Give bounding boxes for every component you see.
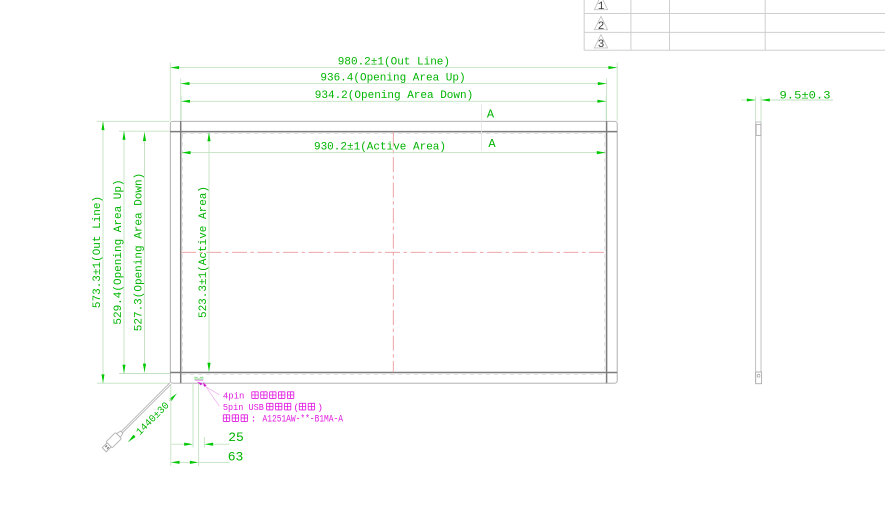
svg-text:): ) <box>317 402 323 413</box>
svg-text:527.3(Opening Area Down): 527.3(Opening Area Down) <box>134 173 146 331</box>
svg-text:936.4(Opening Area Up): 936.4(Opening Area Up) <box>320 72 465 84</box>
svg-text:523.3±1(Active Area): 523.3±1(Active Area) <box>198 186 210 318</box>
svg-text:(: ( <box>293 402 299 413</box>
svg-text:980.2±1(Out Line): 980.2±1(Out Line) <box>338 56 450 68</box>
svg-text::: : <box>251 414 257 425</box>
svg-text:5pin USB: 5pin USB <box>223 402 264 413</box>
svg-text:25: 25 <box>228 430 244 445</box>
svg-text:934.2(Opening Area Down): 934.2(Opening Area Down) <box>315 90 473 102</box>
svg-text:A: A <box>488 137 496 151</box>
svg-text:2: 2 <box>598 21 605 33</box>
svg-text:63: 63 <box>228 450 244 465</box>
svg-text:A: A <box>487 107 495 121</box>
svg-text:529.4(Opening Area Up): 529.4(Opening Area Up) <box>113 179 125 324</box>
svg-text:1: 1 <box>598 1 605 13</box>
svg-text:930.2±1(Active Area): 930.2±1(Active Area) <box>314 142 446 154</box>
svg-text:9.5±0.3: 9.5±0.3 <box>780 90 831 102</box>
svg-text:A1251AW-**-B1MA-A: A1251AW-**-B1MA-A <box>263 414 344 426</box>
svg-text:3: 3 <box>598 39 605 51</box>
svg-text:4pin: 4pin <box>223 391 245 402</box>
svg-text:573.3±1(Out Line): 573.3±1(Out Line) <box>92 196 104 308</box>
